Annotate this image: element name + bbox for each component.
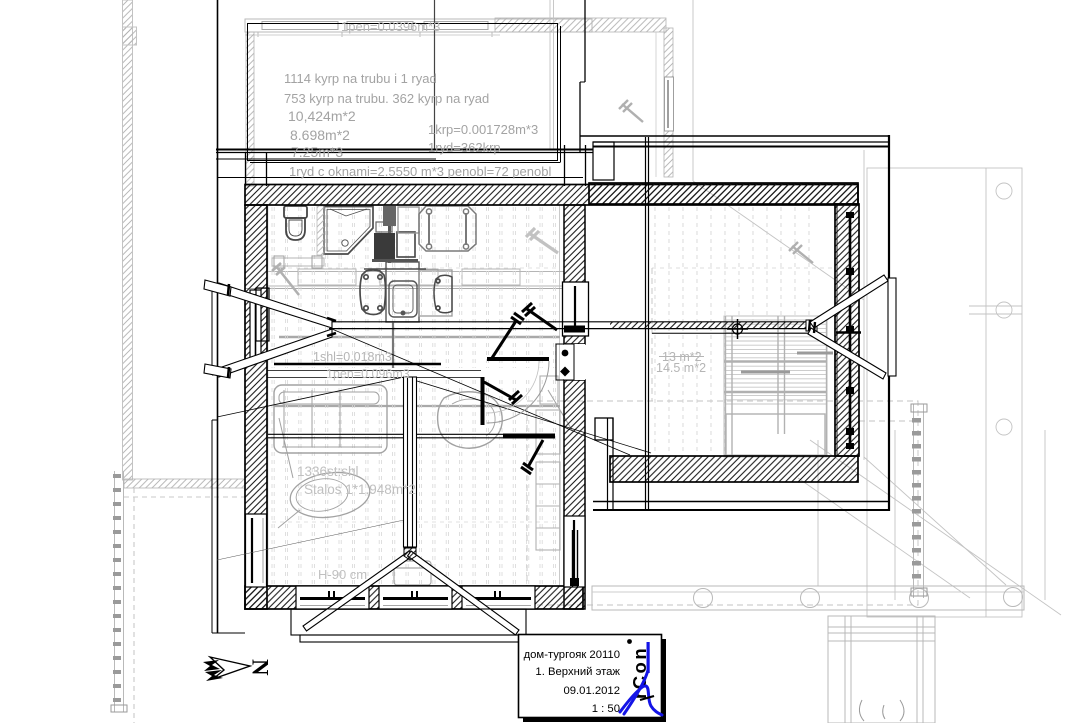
svg-text:1ryd=362krp: 1ryd=362krp <box>428 140 501 155</box>
svg-text:1pen=0.096m3: 1pen=0.096m3 <box>326 367 410 381</box>
svg-text:1336st:shl: 1336st:shl <box>297 464 359 479</box>
svg-text:1ryd c oknami=2.5550 m*3 penob: 1ryd c oknami=2.5550 m*3 penobl=72 penob… <box>289 164 551 179</box>
svg-text:09.01.2012: 09.01.2012 <box>563 685 620 697</box>
svg-text:7.25m*3: 7.25m*3 <box>291 144 343 160</box>
svg-text:8.698m*2: 8.698m*2 <box>290 127 350 143</box>
svg-text:1 : 50: 1 : 50 <box>592 703 620 715</box>
svg-text:Stalos 1*1.948m*2: Stalos 1*1.948m*2 <box>304 482 416 497</box>
svg-text:N: N <box>248 659 273 676</box>
svg-text:10,424m*2: 10,424m*2 <box>288 108 356 124</box>
svg-text:1pen=0.0396m*3: 1pen=0.0396m*3 <box>341 19 440 34</box>
svg-text:14.5 m*2: 14.5 m*2 <box>656 361 706 375</box>
svg-text:1shl=0.018m3: 1shl=0.018m3 <box>313 350 392 364</box>
svg-text:1krp=0.001728m*3: 1krp=0.001728m*3 <box>428 122 538 137</box>
svg-text:1114 kyrp na trubu i 1 ryad: 1114 kyrp na trubu i 1 ryad <box>284 71 437 86</box>
svg-text:H-90 cm: H-90 cm <box>318 567 367 582</box>
svg-text:1. Верхний этаж: 1. Верхний этаж <box>535 666 620 678</box>
svg-text:753 kyrp na trubu. 362 kyrp na: 753 kyrp na trubu. 362 kyrp na ryad <box>284 91 489 106</box>
svg-text:дом-тургояк 20110: дом-тургояк 20110 <box>524 649 620 661</box>
